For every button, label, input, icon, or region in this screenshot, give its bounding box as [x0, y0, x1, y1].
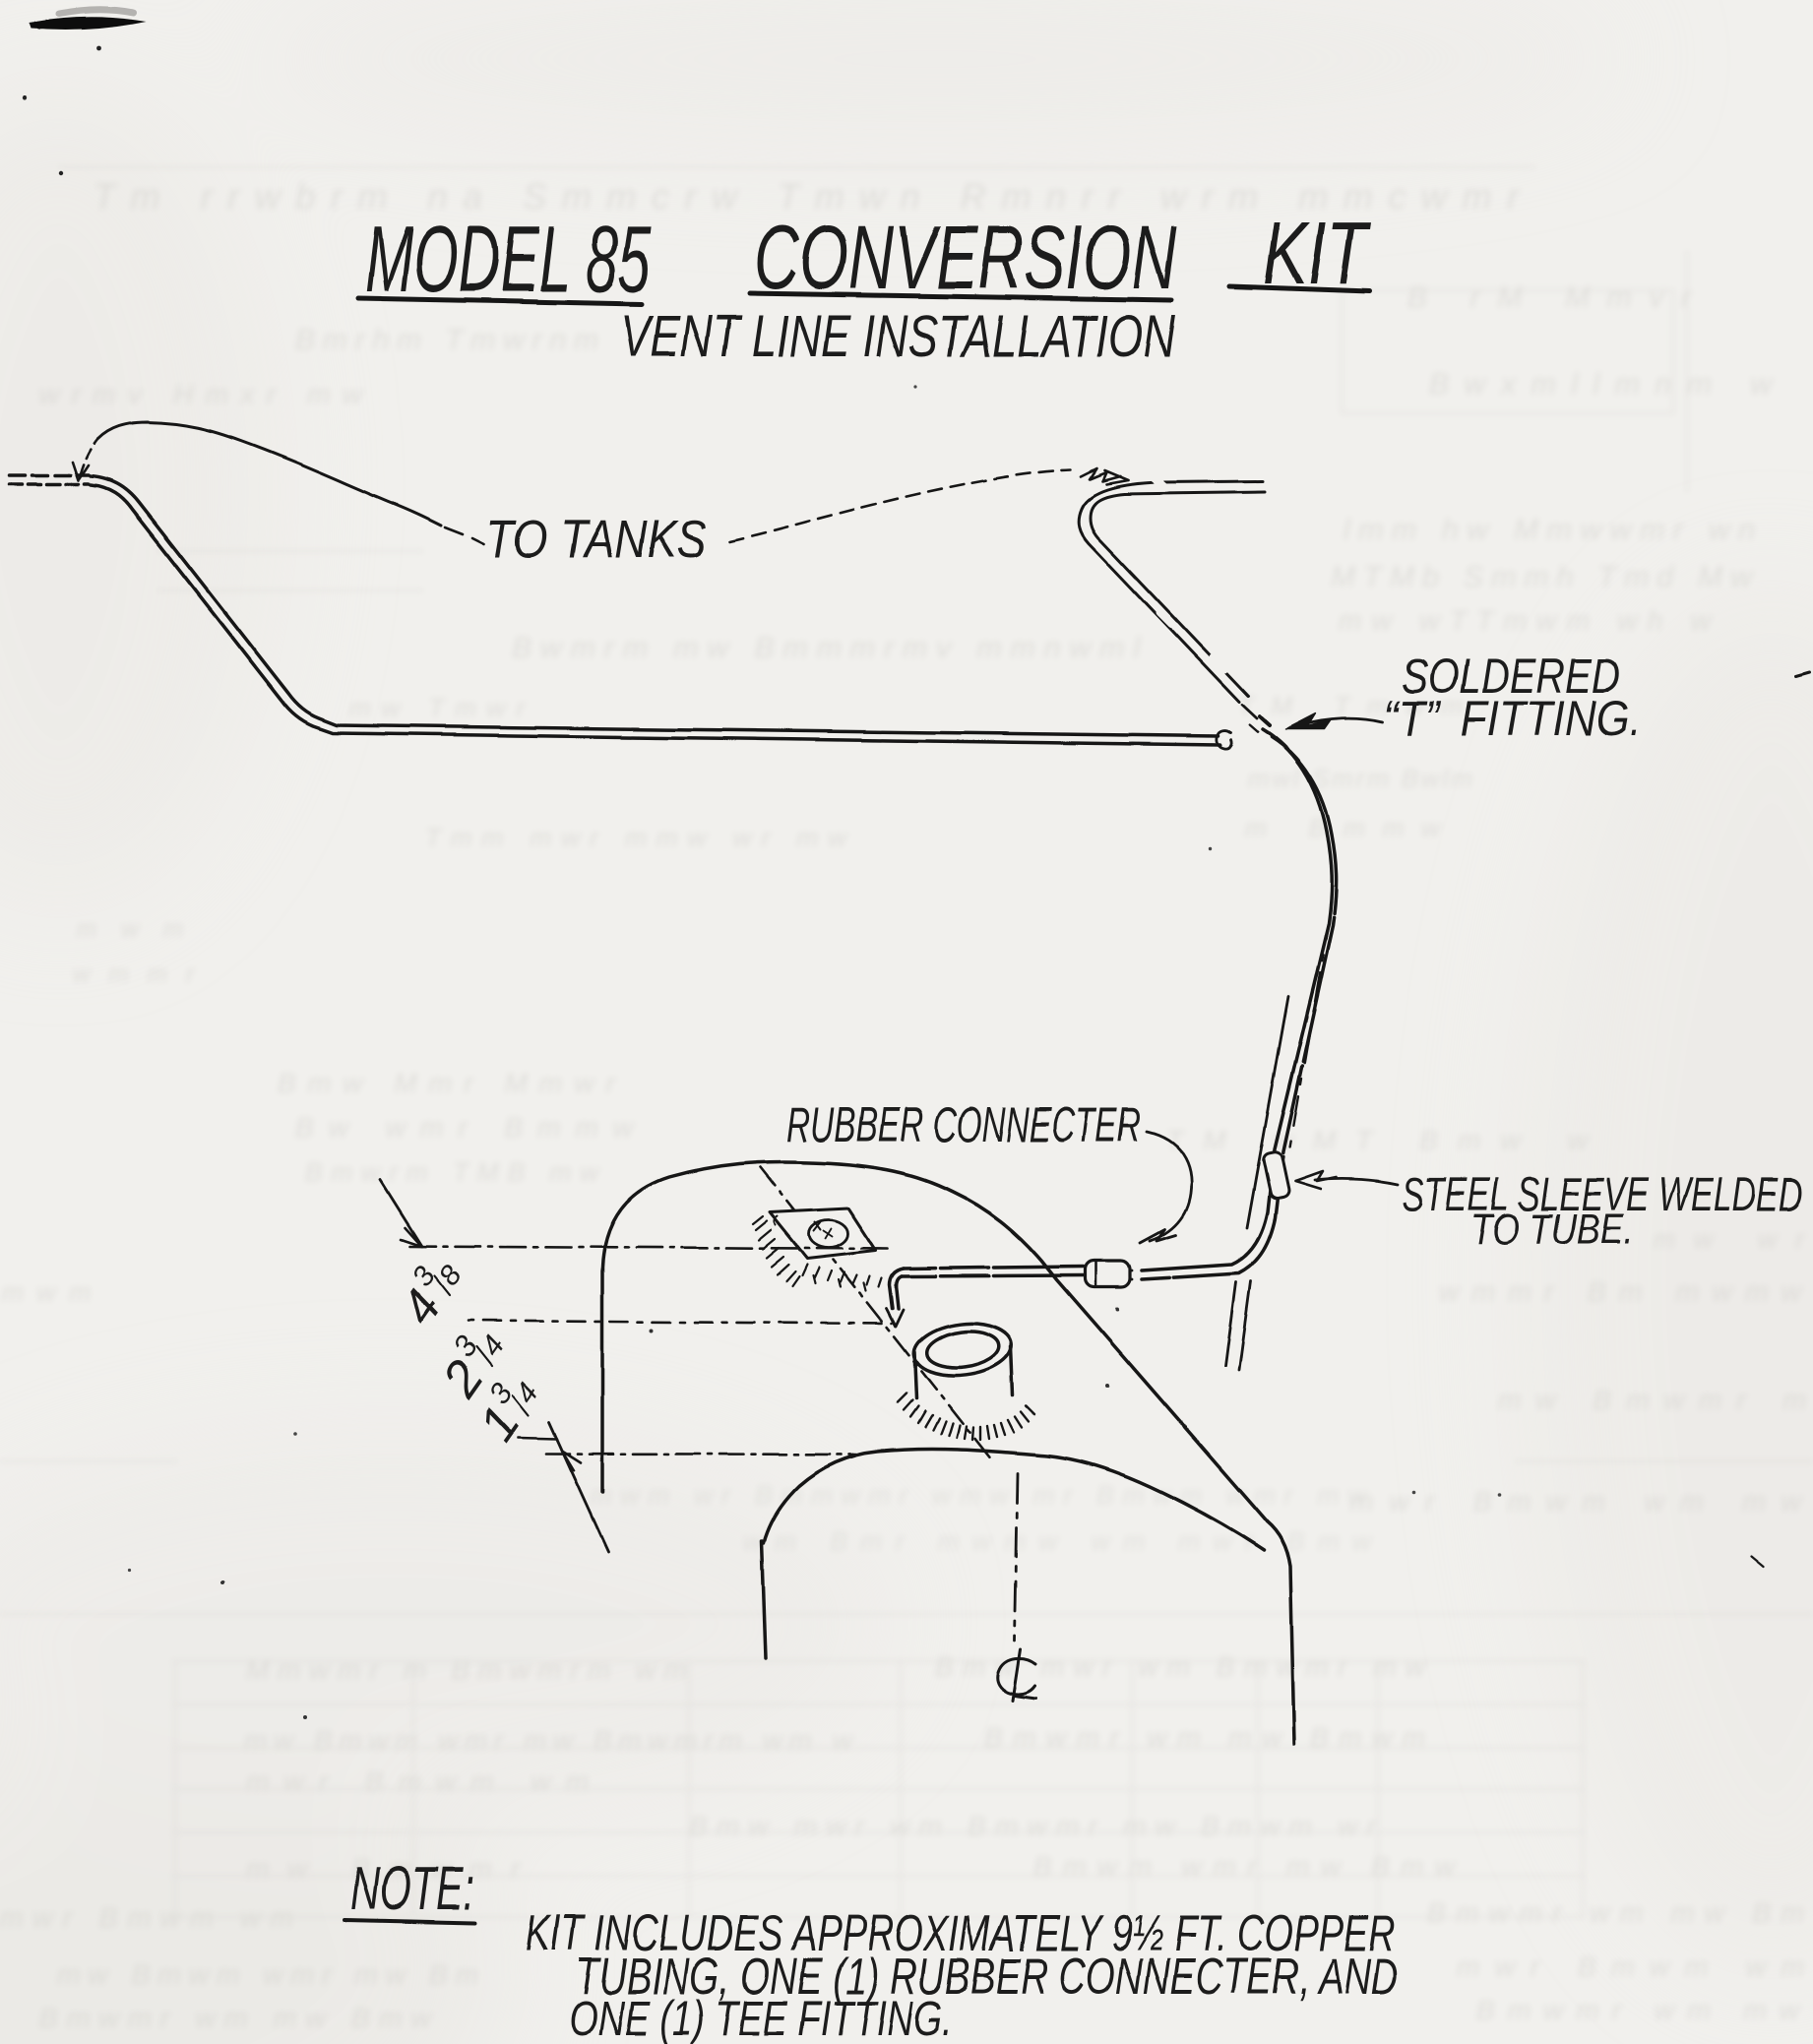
- svg-text:Bwmrm mw Bmmmrmv mmnwml: Bwmrm mw Bmmmrmv mmnwml: [512, 632, 1142, 664]
- svg-text:“T” FITTING.: “T” FITTING.: [1384, 691, 1642, 746]
- svg-text:mwm: mwm: [2, 1277, 93, 1307]
- svg-text:Bmrhm Tmwrnm: Bmrhm Tmwrnm: [295, 324, 600, 356]
- svg-text:Tmm mwr mmw wr mw: Tmm mwr mmw wr mw: [425, 823, 848, 852]
- svg-text:ONE (1) TEE FITTING.: ONE (1) TEE FITTING.: [569, 1991, 953, 2044]
- svg-text:TO TUBE.: TO TUBE.: [1470, 1206, 1634, 1254]
- svg-text:wmmr Bm mwmw: wmmr Bm mwmw: [1439, 1276, 1803, 1307]
- svg-text:Mmwmr m Bmwmrm wm: Mmwmr m Bmwmrm wm: [246, 1654, 689, 1685]
- svg-text:mwm: mwm: [77, 916, 185, 943]
- svg-text:MODEL 85: MODEL 85: [365, 207, 651, 312]
- svg-text:Bmwmr wm mw: Bmwmr wm mw: [1476, 1995, 1801, 2025]
- svg-text:NOTE:: NOTE:: [350, 1855, 474, 1923]
- svg-text:TO TANKS: TO TANKS: [486, 510, 707, 569]
- svg-text:mwl Smrm Bwlm: mwl Smrm Bwlm: [1248, 764, 1474, 793]
- svg-text:mwr Bmwm wm: mwr Bmwm wm: [246, 1766, 591, 1797]
- svg-text:Bw wmr Bmmw: Bw wmr Bmmw: [295, 1112, 635, 1143]
- svg-text:mwr Bmwm wm: mwr Bmwm wm: [1457, 1951, 1806, 1982]
- svg-text:mw Bmwm wmr mw Bm: mw Bmwm wmr mw Bm: [57, 1959, 480, 1990]
- svg-text:RUBBER CONNECTER: RUBBER CONNECTER: [786, 1097, 1141, 1152]
- svg-text:VENT LINE INSTALLATION: VENT LINE INSTALLATION: [620, 303, 1176, 369]
- svg-text:MTMb Smmh Tmd Mw: MTMb Smmh Tmd Mw: [1331, 561, 1754, 593]
- svg-text:Bmwrm TMB mw: Bmwrm TMB mw: [305, 1157, 600, 1187]
- svg-text:lmm hw Mmwwmr wn: lmm hw Mmwwmr wn: [1344, 514, 1757, 546]
